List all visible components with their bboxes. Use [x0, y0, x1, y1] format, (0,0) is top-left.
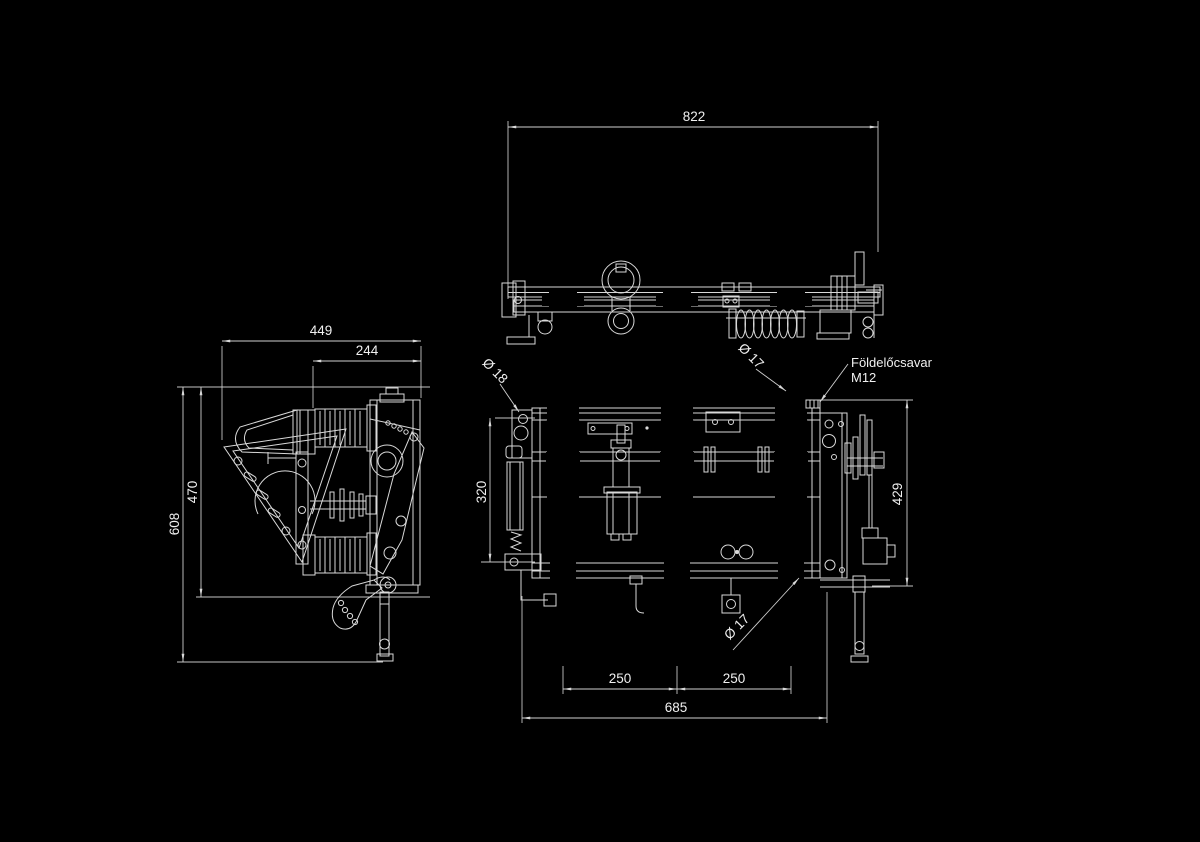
plan-pole-1: [542, 384, 589, 662]
side-crank-lever: [370, 419, 424, 574]
hole-label-17-bottom: Ø 17: [721, 611, 752, 642]
dim-side-upper-width: 244: [313, 343, 421, 408]
dim-plan-frame-depth: 320: [474, 418, 535, 562]
plan-right-bracket: [820, 413, 847, 578]
dim-label-449: 449: [310, 323, 333, 338]
dim-pole-spacing-left: 250: [563, 666, 677, 694]
side-link-bar: [268, 452, 308, 564]
dim-pole-spacing-right: 250: [677, 666, 791, 694]
plan-drive-mechanism: [820, 415, 895, 662]
callout-hole-17-top: Ø 17: [736, 340, 786, 391]
plan-view: 320 429 250 250 685 Ø 18 Ø 1: [474, 340, 933, 723]
plan-pole-2: [656, 384, 703, 662]
dim-label-429: 429: [890, 483, 905, 506]
side-view: 449 244 608 470: [167, 323, 430, 662]
side-support-plate: [224, 429, 346, 562]
earthing-note-line2: M12: [851, 370, 876, 385]
dim-label-250-right: 250: [723, 671, 746, 686]
plan-earthing-screw: [806, 400, 820, 408]
dim-side-overall-width: 449: [222, 323, 421, 440]
side-frame-plate: [366, 388, 420, 593]
dim-label-608: 608: [167, 513, 182, 536]
dim-label-822: 822: [683, 109, 706, 124]
front-view: 822: [502, 109, 883, 344]
front-pole-3: [769, 138, 813, 289]
cad-drawing-canvas: 822: [0, 0, 1200, 842]
dim-label-250-left: 250: [609, 671, 632, 686]
plan-pole-3: [770, 384, 817, 662]
dim-label-320: 320: [474, 481, 489, 504]
plan-shaft-rollers: [704, 447, 769, 472]
side-insulator-top: [315, 405, 376, 451]
dim-front-width: 822: [508, 109, 878, 299]
plan-damper-cylinder: [604, 425, 640, 540]
side-insulator-bottom: [303, 533, 376, 575]
side-operating-handle: [332, 577, 396, 661]
front-right-mechanism: [817, 252, 883, 339]
dim-mounting-width: 685: [522, 592, 827, 723]
dim-label-685: 685: [665, 700, 688, 715]
side-fuse-carrier-cone: [235, 410, 315, 454]
dim-label-244: 244: [356, 343, 379, 358]
switch-disconnector-drawing: 822: [0, 0, 1200, 842]
front-pole-1: [541, 138, 585, 289]
dim-label-470: 470: [185, 481, 200, 504]
earthing-note-line1: Földelőcsavar: [851, 355, 933, 370]
side-spring-shaft: [310, 489, 376, 521]
callout-earthing-screw: Földelőcsavar M12: [820, 355, 933, 402]
hole-label-17-top: Ø 17: [736, 340, 767, 371]
front-pole-2: [655, 138, 699, 289]
hole-label-18: Ø 18: [480, 355, 511, 386]
callout-hole-18: Ø 18: [480, 355, 519, 412]
dim-side-overall-height: 608: [167, 387, 430, 662]
front-drive-spring: [726, 309, 806, 338]
